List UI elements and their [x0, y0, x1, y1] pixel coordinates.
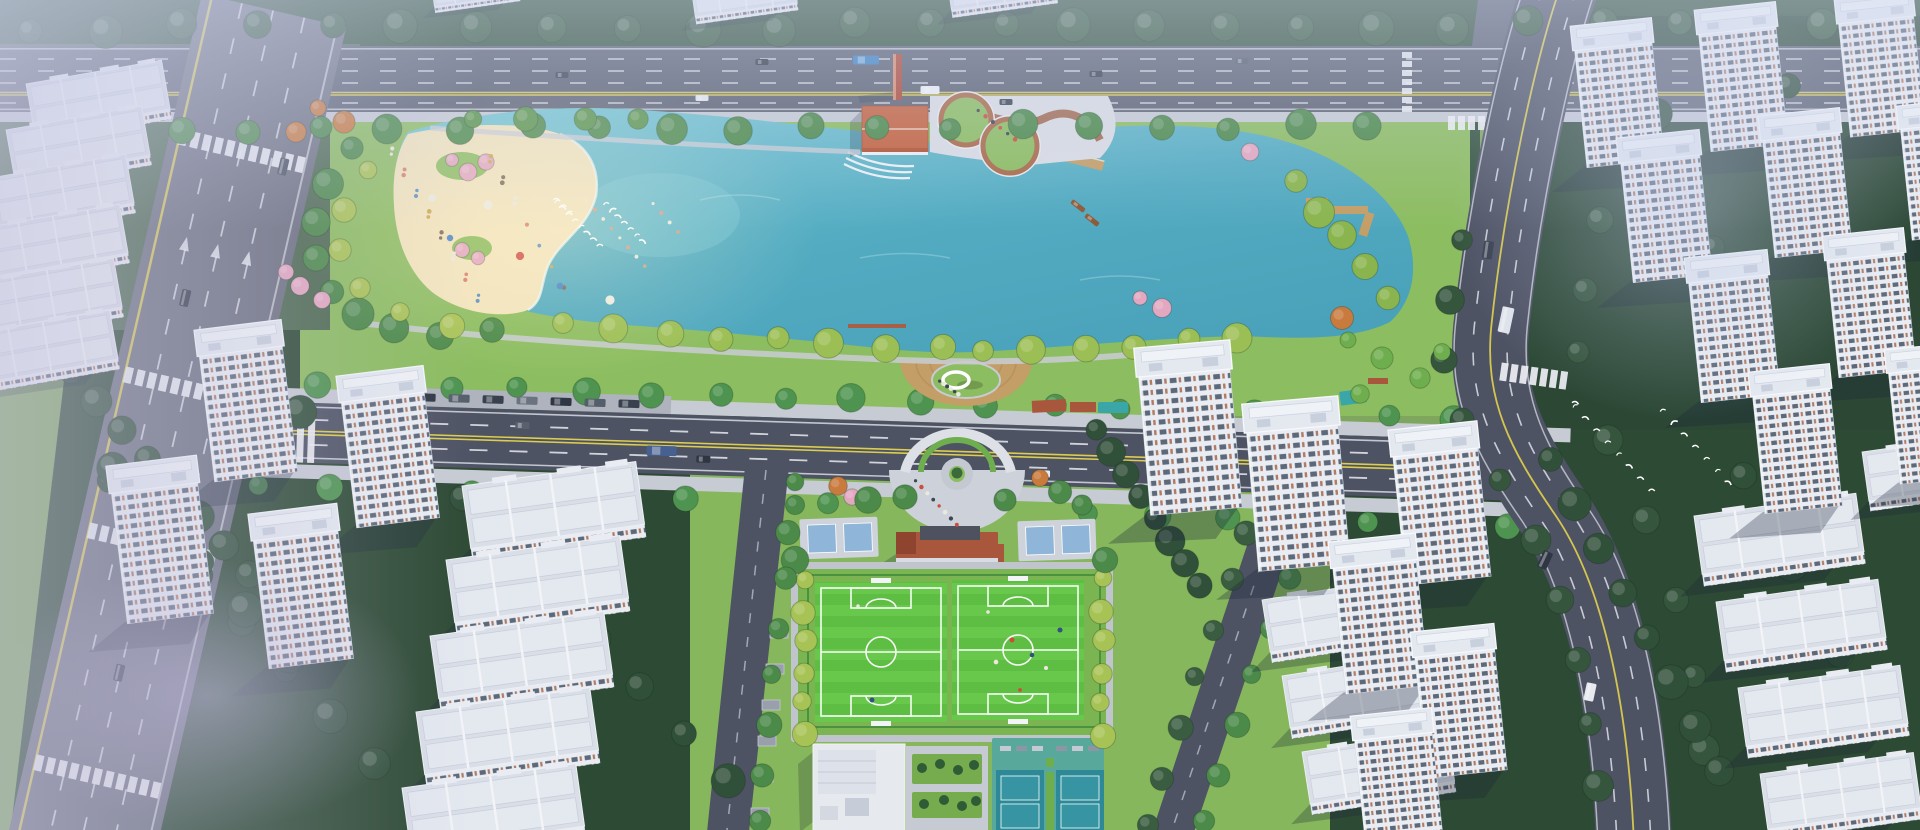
mid-road-cars-item	[696, 455, 710, 462]
east-avenue-east-trees-item	[1663, 587, 1688, 612]
autumn-trees-item	[1032, 470, 1049, 487]
lake-south-shore-trees-east-item	[1017, 335, 1046, 364]
soccer-east-tree-row-item	[1089, 599, 1113, 623]
sports-north-trees-item	[893, 485, 917, 509]
sports-north-trees-item	[1048, 480, 1071, 503]
soccer-players-right-item	[1010, 638, 1015, 643]
lake-south-shore-trees-east-item	[1073, 335, 1100, 362]
tennis-block	[992, 738, 1104, 830]
east-avenue-west-trees-item	[1565, 647, 1590, 672]
mid-road-south-tree-row-east-item	[1357, 512, 1378, 533]
mid-road-north-tree-row-item	[506, 377, 527, 398]
mid-road-north-tree-row-item	[709, 383, 733, 407]
parked-cars-item	[618, 400, 639, 409]
soccer-players-right-item	[1030, 653, 1034, 657]
park-east-lane-trees-w-item	[1150, 767, 1173, 790]
pink-blossom-trees-item	[1152, 298, 1171, 317]
lake-south-shore-trees-west-item	[930, 334, 955, 359]
park-west-lane-trees-item	[768, 618, 788, 638]
east-forest-scatter-item	[1583, 533, 1614, 564]
pink-blossom-trees-item	[1133, 291, 1147, 305]
east-avenue-west-trees-item	[1521, 525, 1551, 555]
park-east-lane-trees-e-item	[1206, 764, 1229, 787]
mid-road-bus-item	[646, 445, 676, 456]
goal	[1008, 576, 1028, 581]
soccer-west-tree-row-item	[793, 692, 811, 710]
east-avenue-west-trees-item	[1583, 771, 1614, 802]
ne-garden-trees-item	[1340, 332, 1356, 348]
east-forest-scatter-item	[1538, 447, 1562, 471]
parked-cars-item	[516, 396, 537, 405]
hedge-strip	[1046, 772, 1054, 830]
soccer-players-left-item	[856, 604, 860, 608]
east-forest-scatter-item	[1558, 487, 1591, 520]
goal	[1008, 719, 1028, 724]
service-building	[798, 744, 905, 830]
park-west-lane-trees-item	[750, 764, 773, 787]
park-east-lane-trees-e-item	[1225, 712, 1250, 737]
garden-wall	[1368, 378, 1388, 384]
reflecting-pool	[1098, 402, 1128, 413]
lake-east-shore-willows-item	[1352, 253, 1378, 279]
fan-plaza-people-item	[919, 485, 923, 489]
mid-road-cars-item	[515, 422, 529, 429]
west-forest-scatter-item	[711, 764, 745, 798]
mid-road-south-tree-row-west-item	[817, 492, 839, 514]
fan-plaza-people-item	[949, 516, 953, 520]
overlook-people-item	[956, 392, 961, 397]
soccer-players-right-item	[1057, 627, 1062, 632]
overlook-people-item	[949, 387, 953, 391]
soccer-players-right-item	[986, 610, 990, 614]
lake-south-shore-trees-east-item	[973, 341, 994, 362]
soccer-west-tree-row-item	[791, 601, 815, 625]
brick-planter	[1070, 402, 1096, 412]
soccer-complex	[791, 562, 1113, 742]
center-right-grove-item	[1171, 550, 1199, 578]
sports-north-trees-item	[994, 489, 1016, 511]
masterplan-scene	[0, 0, 1920, 830]
park-east-lane-trees-e-item	[1193, 810, 1214, 830]
soccer-west-tree-row-item	[792, 721, 817, 746]
fan-plaza-people-item	[937, 504, 940, 507]
soccer-west-tree-row-item	[795, 629, 817, 651]
park-east-lane-trees-w-item	[1168, 715, 1193, 740]
soccer-pitch-left	[815, 578, 947, 726]
fan-plaza-people-item	[914, 479, 917, 482]
sports-north-trees-item	[855, 487, 882, 514]
park-west-lane-trees-item	[774, 567, 796, 589]
east-forest-scatter-item	[1654, 665, 1689, 700]
soccer-players-right-item	[1018, 688, 1022, 692]
park-east-lane-trees-w-item	[1203, 620, 1223, 640]
overlook-people-item	[938, 380, 941, 383]
overlook-people-item	[953, 390, 956, 393]
soccer-players-right-item	[994, 660, 999, 665]
lake-east-shore-willows-item	[1376, 286, 1400, 310]
parked-cars-item	[550, 397, 571, 406]
mid-road-north-tree-row-item	[836, 383, 865, 412]
park-west-lane-trees-item	[786, 473, 804, 491]
fan-plaza-people-item	[955, 523, 959, 527]
brick-planter	[1032, 399, 1067, 413]
park-west-lane-trees-item	[757, 712, 782, 737]
soccer-east-tree-row-item	[1093, 629, 1115, 651]
west-forest-scatter-item	[626, 673, 654, 701]
soccer-east-tree-row-item	[1092, 664, 1112, 684]
soccer-west-tree-row-item	[796, 571, 814, 589]
east-avenue-west-trees-item	[1579, 713, 1602, 736]
overlook-people-item	[941, 382, 945, 386]
center-right-grove-item	[1113, 461, 1140, 488]
ne-garden-trees-item	[1351, 385, 1370, 404]
mid-road-north-tree-row-item	[638, 382, 664, 408]
mid-road-south-tree-row-west-item	[672, 486, 698, 512]
badminton-court-east	[1017, 519, 1096, 562]
parked-cars-item	[482, 395, 503, 404]
center-right-grove-item	[1187, 573, 1212, 598]
soccer-pitch-right	[952, 576, 1084, 724]
east-forest-scatter-item	[1634, 625, 1659, 650]
park-west-lane-trees-item	[762, 665, 780, 683]
soccer-players-right-item	[1044, 666, 1048, 670]
ne-garden-trees-item	[1410, 368, 1430, 388]
overlook-people-item	[945, 384, 949, 388]
ne-garden-trees-item	[1434, 344, 1451, 361]
badminton-court-west	[799, 517, 878, 560]
park-west-lane-trees-item	[776, 520, 800, 544]
sports-north-trees-item	[1092, 547, 1117, 572]
red-brick-pavilion	[884, 526, 1004, 566]
autumn-trees-item	[1331, 307, 1354, 330]
mid-road-north-tree-row-item	[775, 388, 797, 410]
lake-south-shore-trees-west-item	[872, 335, 900, 363]
goal	[871, 578, 891, 583]
west-forest-scatter-item	[672, 721, 697, 746]
autumn-trees-item	[829, 477, 848, 496]
east-forest-scatter-item	[1679, 711, 1711, 743]
sports-north-trees-item	[785, 495, 804, 514]
park-west-lane-trees-item	[749, 810, 770, 830]
soccer-west-tree-row-item	[794, 663, 814, 683]
park-east-lane-trees-w-item	[1185, 667, 1203, 685]
soccer-players-left-item	[870, 698, 875, 703]
east-forest-scatter-item	[1705, 757, 1734, 786]
ne-garden-trees-item	[1371, 347, 1393, 369]
mid-road-north-tree-row-item	[1379, 405, 1401, 427]
east-forest-scatter-item	[1609, 579, 1637, 607]
fan-plaza-people-item	[931, 498, 935, 502]
soccer-east-tree-row-item	[1091, 693, 1109, 711]
east-avenue-west-trees-item	[1546, 586, 1574, 614]
east-avenue-east-trees-item	[1632, 506, 1660, 534]
fan-plaza-people-item	[925, 491, 929, 495]
east-avenue-west-trees-item	[1489, 469, 1511, 491]
conifer-bosque	[906, 746, 988, 830]
east-forest-scatter-item	[1730, 463, 1756, 489]
soccer-east-tree-row-item	[1090, 723, 1115, 748]
aerial-rendering-stage	[0, 0, 1920, 830]
parked-cars-item	[584, 398, 605, 407]
feature-tree	[952, 468, 963, 479]
goal	[871, 721, 891, 726]
sports-north-trees-item	[1072, 495, 1092, 515]
fan-plaza-people-item	[943, 510, 948, 515]
hedge-box	[1046, 758, 1054, 767]
center-right-grove-item	[1086, 419, 1107, 440]
